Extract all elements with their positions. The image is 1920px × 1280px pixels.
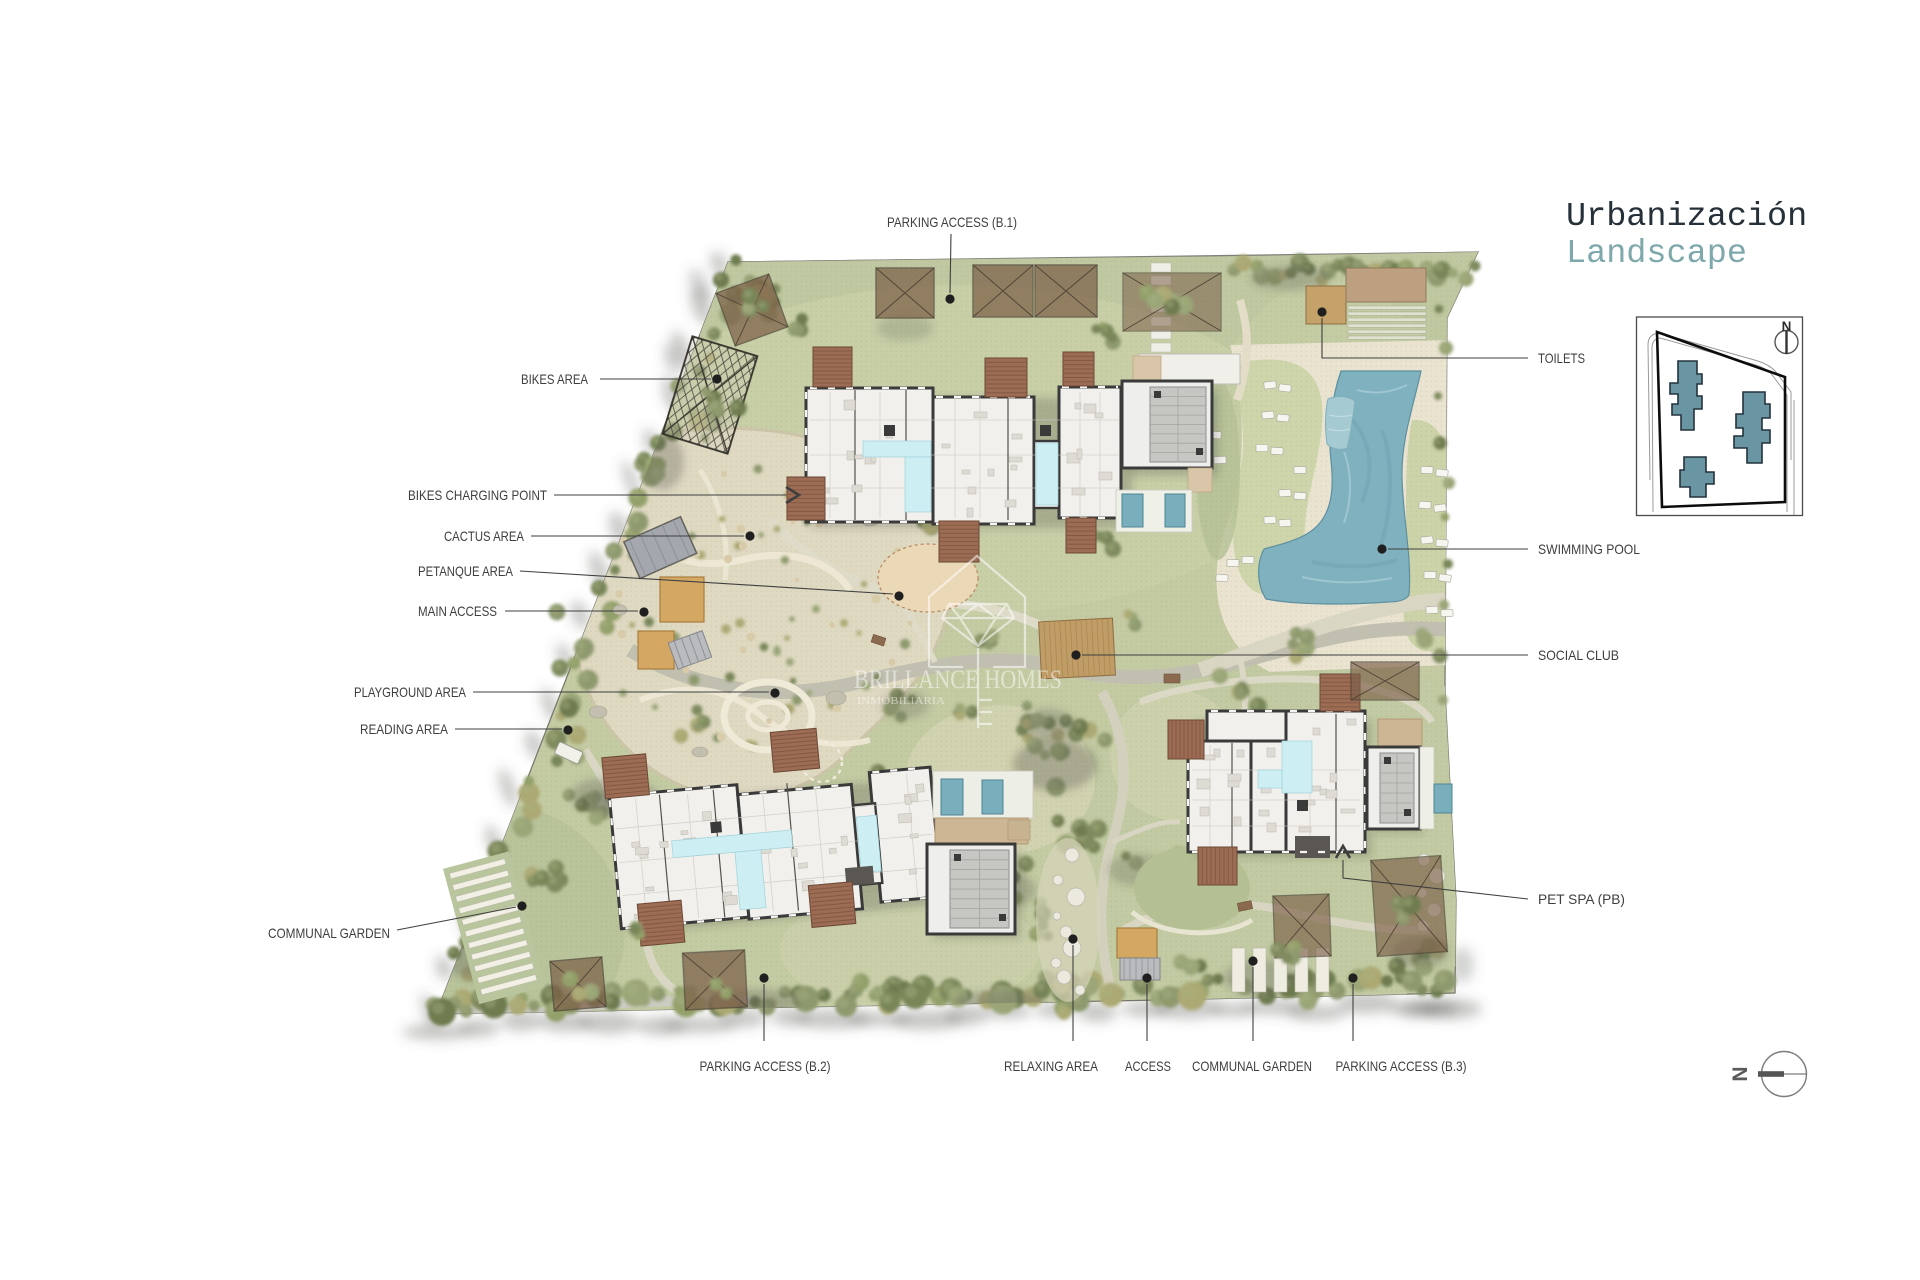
svg-text:N: N <box>1729 1066 1752 1081</box>
svg-text:Urbanización: Urbanización <box>1566 198 1807 236</box>
svg-text:BRILLANCE HOMES: BRILLANCE HOMES <box>854 665 1062 694</box>
svg-text:CACTUS AREA: CACTUS AREA <box>444 528 525 544</box>
svg-text:BIKES CHARGING POINT: BIKES CHARGING POINT <box>408 487 547 503</box>
svg-text:PETANQUE AREA: PETANQUE AREA <box>418 563 514 579</box>
svg-text:ACCESS: ACCESS <box>1125 1058 1171 1074</box>
svg-text:N: N <box>1782 319 1792 334</box>
svg-text:INMOBILIARIA: INMOBILIARIA <box>857 696 945 707</box>
svg-text:PARKING ACCESS (B.1): PARKING ACCESS (B.1) <box>887 214 1017 230</box>
svg-text:TOILETS: TOILETS <box>1538 350 1585 366</box>
svg-text:Landscape: Landscape <box>1566 235 1747 273</box>
svg-text:PET SPA (PB): PET SPA (PB) <box>1538 891 1625 907</box>
svg-text:PLAYGROUND AREA: PLAYGROUND AREA <box>354 684 467 700</box>
svg-text:SOCIAL CLUB: SOCIAL CLUB <box>1538 647 1619 663</box>
svg-text:RELAXING AREA: RELAXING AREA <box>1004 1058 1099 1074</box>
svg-text:MAIN ACCESS: MAIN ACCESS <box>418 603 497 619</box>
svg-text:READING AREA: READING AREA <box>360 721 449 737</box>
svg-text:PARKING ACCESS (B.2): PARKING ACCESS (B.2) <box>700 1058 831 1074</box>
svg-text:SWIMMING POOL: SWIMMING POOL <box>1538 541 1640 557</box>
svg-text:PARKING ACCESS (B.3): PARKING ACCESS (B.3) <box>1336 1058 1467 1074</box>
svg-text:COMMUNAL GARDEN: COMMUNAL GARDEN <box>268 925 390 941</box>
svg-text:BIKES AREA: BIKES AREA <box>521 371 589 387</box>
svg-text:COMMUNAL GARDEN: COMMUNAL GARDEN <box>1192 1058 1312 1074</box>
